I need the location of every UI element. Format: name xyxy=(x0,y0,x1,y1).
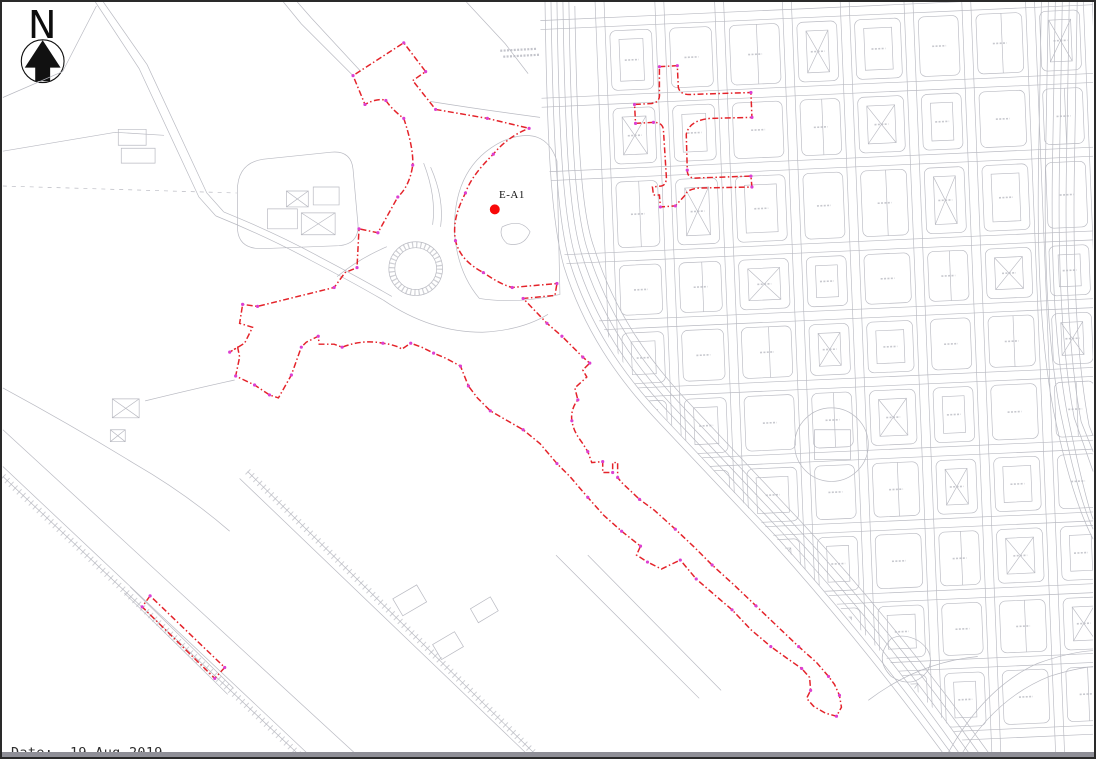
north-label: N xyxy=(28,6,56,44)
site-plan-map xyxy=(2,2,1094,757)
bottom-border-band xyxy=(2,752,1094,757)
site-plan-page: N E-A1 Date: 19-Aug-2019 Scale 1:4000(A3… xyxy=(0,0,1096,759)
site-marker-label: E-A1 xyxy=(499,189,525,201)
city-grid xyxy=(518,2,1094,757)
site-marker-dot xyxy=(490,204,500,214)
survey-boundary xyxy=(142,43,841,716)
